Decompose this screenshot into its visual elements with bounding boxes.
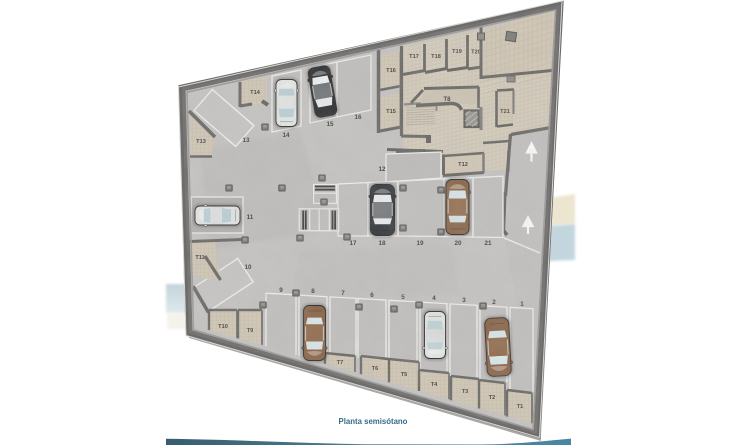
svg-text:Planta semisótano: Planta semisótano bbox=[339, 417, 408, 426]
